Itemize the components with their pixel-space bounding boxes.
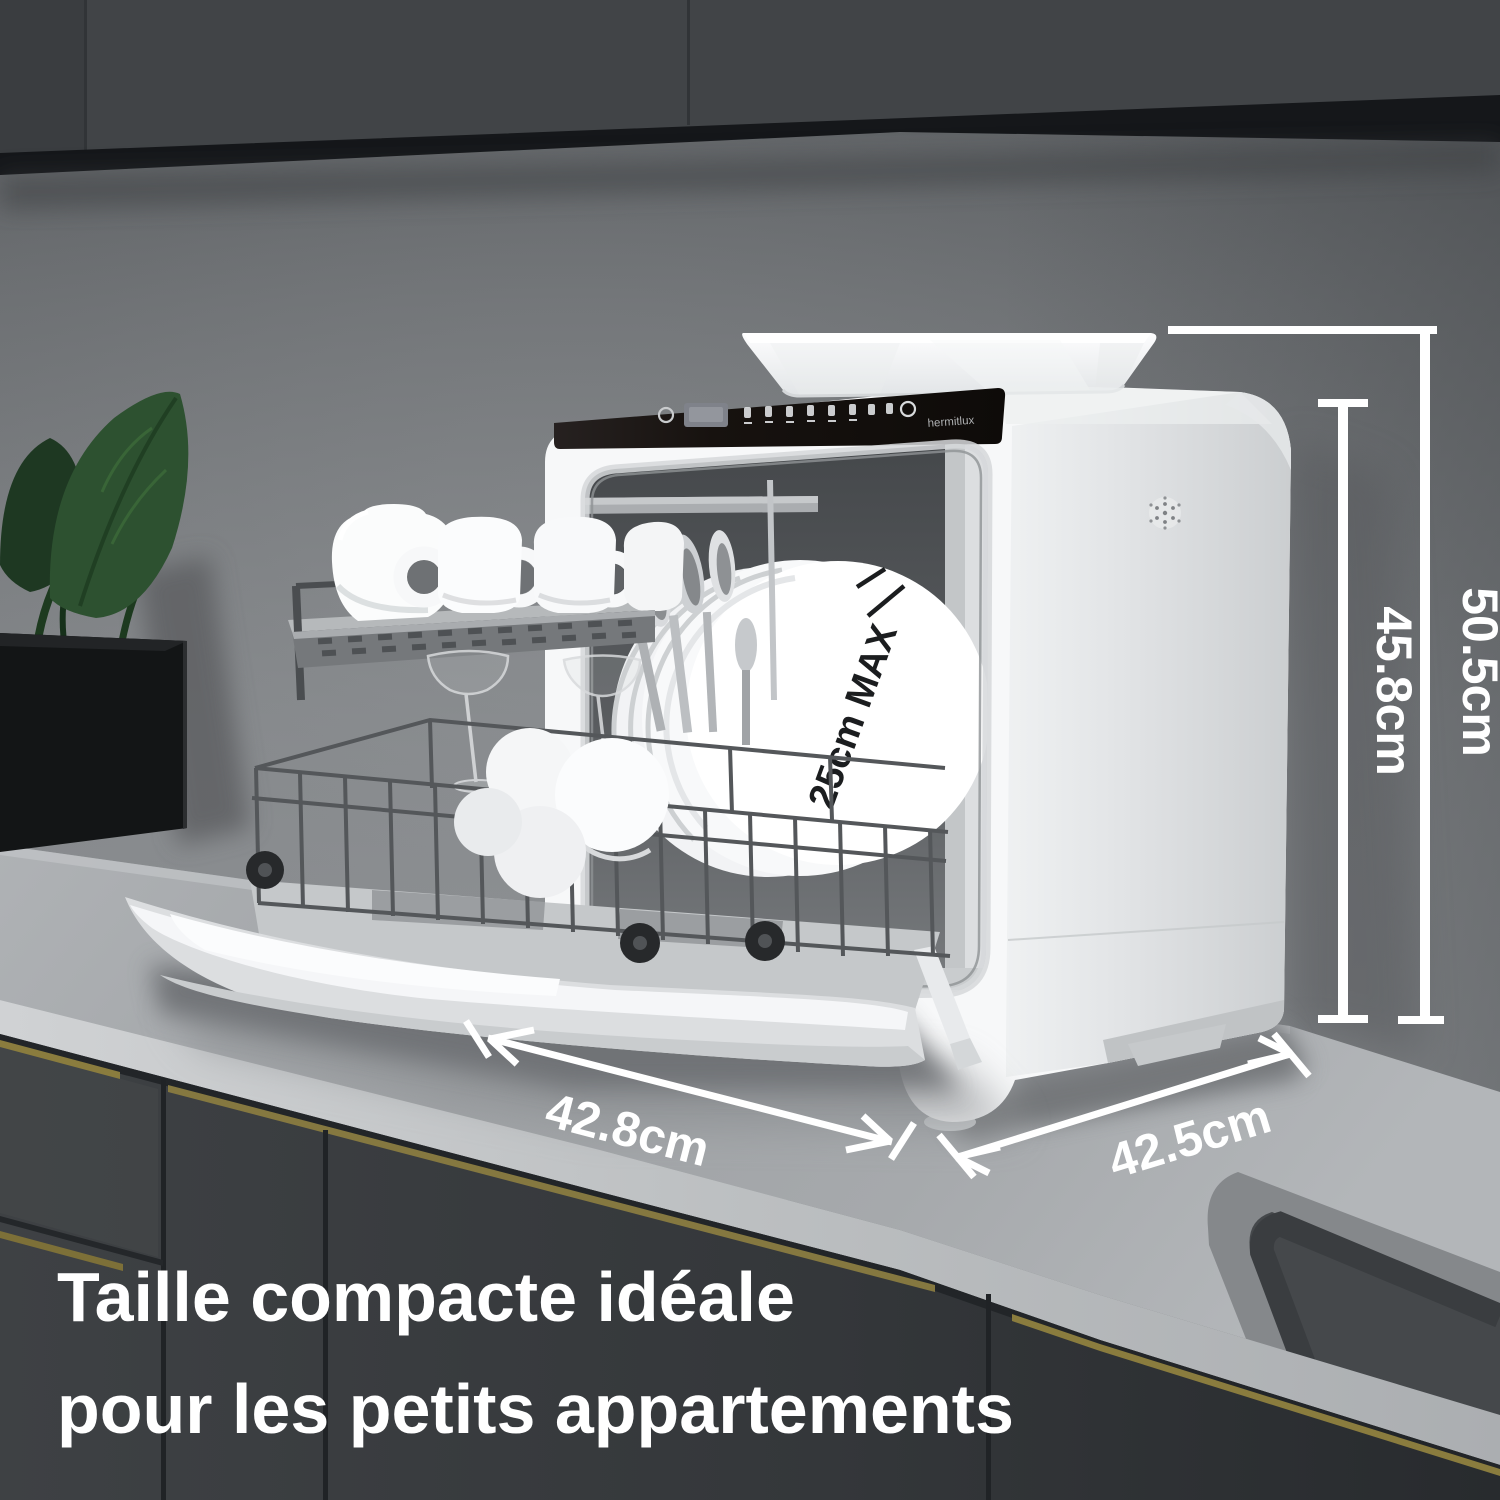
svg-text:50.5cm: 50.5cm — [1452, 587, 1500, 757]
svg-text:45.8cm: 45.8cm — [1366, 606, 1422, 776]
